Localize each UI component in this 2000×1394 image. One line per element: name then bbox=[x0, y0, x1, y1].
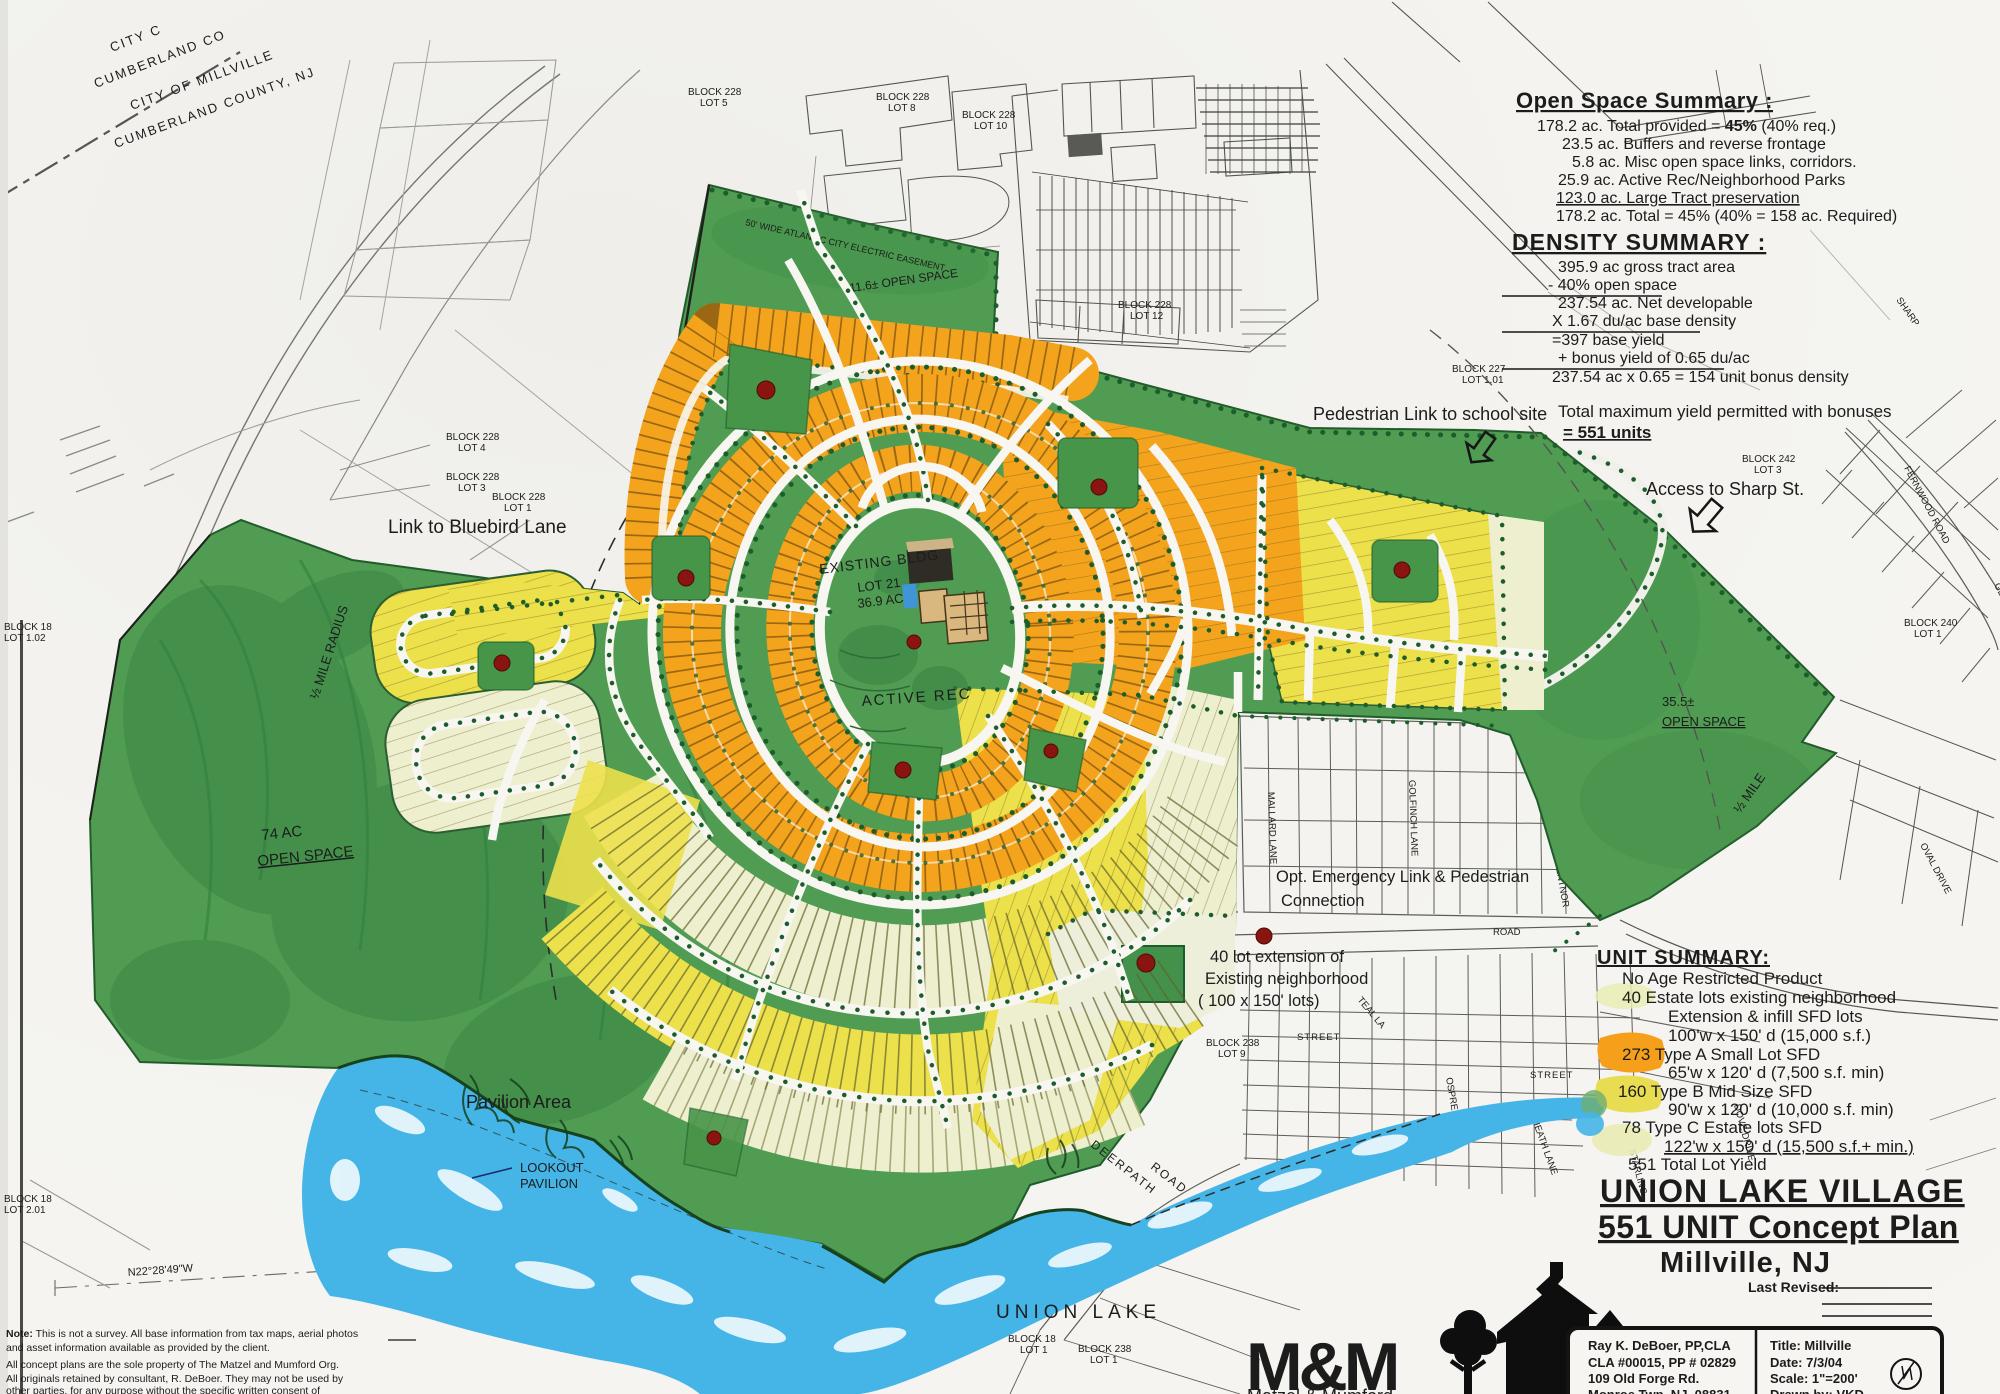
svg-text:23.5 ac. Buffers and reverse f: 23.5 ac. Buffers and reverse frontage bbox=[1562, 136, 1826, 153]
svg-text:109 Old Forge Rd.: 109 Old Forge Rd. bbox=[1588, 1371, 1699, 1386]
svg-text:LOT 1: LOT 1 bbox=[504, 503, 532, 514]
svg-text:BLOCK 228: BLOCK 228 bbox=[688, 87, 742, 98]
svg-text:LOT 5: LOT 5 bbox=[700, 98, 728, 109]
svg-text:Scale: 1"=200': Scale: 1"=200' bbox=[1770, 1371, 1858, 1386]
svg-text:X 1.67 du/ac base density: X 1.67 du/ac base density bbox=[1552, 313, 1736, 330]
svg-text:40 lot extension of: 40 lot extension of bbox=[1210, 948, 1344, 966]
svg-text:Connection: Connection bbox=[1281, 892, 1364, 910]
svg-text:PAVILION: PAVILION bbox=[520, 1176, 578, 1191]
svg-text:LOT 4: LOT 4 bbox=[458, 443, 486, 454]
svg-text:178.2 ac. Total = 45% (40% = 1: 178.2 ac. Total = 45% (40% = 158 ac. Req… bbox=[1556, 208, 1897, 225]
svg-text:160 Type B Mid Size SFD: 160 Type B Mid Size SFD bbox=[1618, 1082, 1812, 1101]
svg-text:LOT 3: LOT 3 bbox=[458, 483, 486, 494]
svg-text:395.9 ac gross tract area: 395.9 ac gross tract area bbox=[1558, 259, 1735, 276]
svg-text:other parties, for any purpose: other parties, for any purpose without t… bbox=[6, 1385, 320, 1394]
svg-text:237.54 ac. Net developable: 237.54 ac. Net developable bbox=[1558, 295, 1753, 312]
svg-text:Access to Sharp St.: Access to Sharp St. bbox=[1646, 479, 1804, 499]
svg-text:STREET: STREET bbox=[1297, 1032, 1340, 1043]
svg-text:BLOCK 228: BLOCK 228 bbox=[962, 110, 1016, 121]
svg-text:LOT 1.02: LOT 1.02 bbox=[4, 633, 46, 644]
svg-text:Total maximum yield permitted: Total maximum yield permitted with bonus… bbox=[1558, 402, 1892, 421]
svg-text:All originals retained by cons: All originals retained by consultant, R.… bbox=[6, 1373, 344, 1385]
svg-text:123.0 ac. Large Tract preserv: 123.0 ac. Large Tract preservation bbox=[1556, 190, 1800, 207]
svg-text:5.8 ac. Misc open space links,: 5.8 ac. Misc open space links, corridors… bbox=[1572, 154, 1857, 171]
svg-text:STREET: STREET bbox=[1530, 1070, 1573, 1081]
svg-text:Last Revised:: Last Revised: bbox=[1748, 1279, 1839, 1295]
svg-text:BLOCK 18: BLOCK 18 bbox=[4, 622, 52, 633]
svg-text:35.5±: 35.5± bbox=[1662, 694, 1694, 709]
svg-text:Pavilion Area: Pavilion Area bbox=[466, 1092, 572, 1112]
svg-text:LOT 10: LOT 10 bbox=[974, 121, 1008, 132]
svg-text:Opt. Emergency Link & Pedestri: Opt. Emergency Link & Pedestrian bbox=[1276, 868, 1529, 886]
svg-text:BLOCK 228: BLOCK 228 bbox=[1118, 300, 1172, 311]
svg-text:= 551 units: = 551 units bbox=[1563, 423, 1651, 442]
svg-text:Extension & infill SFD lots: Extension & infill SFD lots bbox=[1668, 1007, 1863, 1026]
svg-text:- 40% open space: - 40% open space bbox=[1548, 277, 1677, 294]
svg-text:UNIT SUMMARY:: UNIT SUMMARY: bbox=[1597, 947, 1770, 969]
svg-text:Link to Bluebird Lane: Link to Bluebird Lane bbox=[388, 517, 567, 538]
svg-text:178.2 ac. Total provided = 45: 178.2 ac. Total provided = 45% (40% req.… bbox=[1537, 118, 1836, 135]
svg-text:Open Space Summary :: Open Space Summary : bbox=[1516, 88, 1773, 113]
svg-text:BLOCK 228: BLOCK 228 bbox=[446, 472, 500, 483]
svg-text:Matzel & Mumford: Matzel & Mumford bbox=[1247, 1386, 1393, 1394]
svg-text:LOOKOUT: LOOKOUT bbox=[520, 1160, 584, 1175]
svg-text:Date: 7/3/04: Date: 7/3/04 bbox=[1770, 1355, 1843, 1370]
svg-text:BLOCK 227: BLOCK 227 bbox=[1452, 364, 1506, 375]
svg-text:Ray K. DeBoer, PP,CLA: Ray K. DeBoer, PP,CLA bbox=[1588, 1338, 1731, 1353]
svg-text:=397 base yield: =397 base yield bbox=[1552, 332, 1665, 349]
svg-text:LOT 3: LOT 3 bbox=[1754, 465, 1782, 476]
svg-text:273 Type A Small Lot SFD: 273 Type A Small Lot SFD bbox=[1622, 1045, 1820, 1064]
svg-text:LOT 12: LOT 12 bbox=[1130, 311, 1164, 322]
svg-text:ROAD: ROAD bbox=[1493, 927, 1521, 938]
svg-text:551 UNIT Concept Plan: 551 UNIT Concept Plan bbox=[1598, 1209, 1959, 1245]
svg-text:90'w x 120' d (10,000 s.f. min: 90'w x 120' d (10,000 s.f. min) bbox=[1668, 1100, 1894, 1119]
svg-text:122'w x 150' d (15,500 s.f.+ m: 122'w x 150' d (15,500 s.f.+ min.) bbox=[1664, 1137, 1914, 1156]
svg-text:551 Total Lot Yield: 551 Total Lot Yield bbox=[1628, 1155, 1767, 1174]
svg-text:Millville, NJ: Millville, NJ bbox=[1660, 1247, 1831, 1279]
svg-text:Pedestrian Link to school site: Pedestrian Link to school site bbox=[1313, 404, 1547, 424]
svg-text:LOT 8: LOT 8 bbox=[888, 103, 916, 114]
svg-text:UNION LAKE: UNION LAKE bbox=[996, 1302, 1161, 1323]
svg-text:UNION LAKE VILLAGE: UNION LAKE VILLAGE bbox=[1600, 1173, 1965, 1209]
svg-text:LOT 9: LOT 9 bbox=[1218, 1049, 1246, 1060]
svg-text:( 100 x 150' lots): ( 100 x 150' lots) bbox=[1198, 992, 1319, 1010]
svg-text:BLOCK 238: BLOCK 238 bbox=[1078, 1344, 1132, 1355]
svg-text:BLOCK 228: BLOCK 228 bbox=[876, 92, 930, 103]
svg-text:Monroe Twp, NJ, 08831: Monroe Twp, NJ, 08831 bbox=[1588, 1387, 1731, 1394]
svg-text:+ bonus yield of 0.65 du/ac: + bonus yield of 0.65 du/ac bbox=[1558, 350, 1750, 367]
svg-text:BLOCK 18: BLOCK 18 bbox=[4, 1194, 52, 1205]
svg-text:No Age Restricted Product: No Age Restricted Product bbox=[1622, 969, 1823, 988]
svg-text:BLOCK 238: BLOCK 238 bbox=[1206, 1038, 1260, 1049]
svg-text:40 Estate lots existing neighb: 40 Estate lots existing neighborhood bbox=[1622, 988, 1896, 1007]
svg-text:LOT 1: LOT 1 bbox=[1914, 629, 1942, 640]
svg-text:Drawn by: VKD: Drawn by: VKD bbox=[1770, 1387, 1864, 1394]
svg-text:BLOCK 242: BLOCK 242 bbox=[1742, 454, 1796, 465]
svg-text:25.9 ac. Active Rec/Neighborho: 25.9 ac. Active Rec/Neighborhood Parks bbox=[1558, 172, 1845, 189]
svg-text:Note: This is not a survey. Al: Note: This is not a survey. All base inf… bbox=[6, 1328, 358, 1340]
svg-text:LOT 2.01: LOT 2.01 bbox=[4, 1205, 46, 1216]
svg-text:BLOCK 228: BLOCK 228 bbox=[446, 432, 500, 443]
svg-text:100'w x 150' d (15,000 s.f.): 100'w x 150' d (15,000 s.f.) bbox=[1668, 1026, 1871, 1045]
svg-text:All concept plans are the sole: All concept plans are the sole property … bbox=[6, 1359, 339, 1371]
svg-text:Title: Millville: Title: Millville bbox=[1770, 1338, 1851, 1353]
svg-text:OPEN SPACE: OPEN SPACE bbox=[1662, 714, 1746, 729]
svg-text:M&M: M&M bbox=[1246, 1329, 1397, 1394]
svg-text:DENSITY SUMMARY :: DENSITY SUMMARY : bbox=[1512, 229, 1766, 255]
svg-text:BLOCK 228: BLOCK 228 bbox=[492, 492, 546, 503]
svg-text:CLA #00015, PP # 02829: CLA #00015, PP # 02829 bbox=[1588, 1355, 1736, 1370]
svg-text:and asset information availabl: and asset information available as provi… bbox=[6, 1342, 270, 1354]
svg-text:65'w x 120' d (7,500 s.f. min): 65'w x 120' d (7,500 s.f. min) bbox=[1668, 1063, 1884, 1082]
svg-text:Existing neighborhood: Existing neighborhood bbox=[1205, 970, 1368, 988]
svg-text:LOT 1: LOT 1 bbox=[1020, 1345, 1048, 1356]
svg-text:LOT 1: LOT 1 bbox=[1090, 1355, 1118, 1366]
svg-text:237.54 ac x 0.65 = 154 unit bo: 237.54 ac x 0.65 = 154 unit bonus densit… bbox=[1552, 369, 1849, 386]
svg-text:BLOCK 240: BLOCK 240 bbox=[1904, 618, 1958, 629]
svg-text:BLOCK 18: BLOCK 18 bbox=[1008, 1334, 1056, 1345]
svg-text:78 Type C Estate lots SFD: 78 Type C Estate lots SFD bbox=[1622, 1118, 1822, 1137]
